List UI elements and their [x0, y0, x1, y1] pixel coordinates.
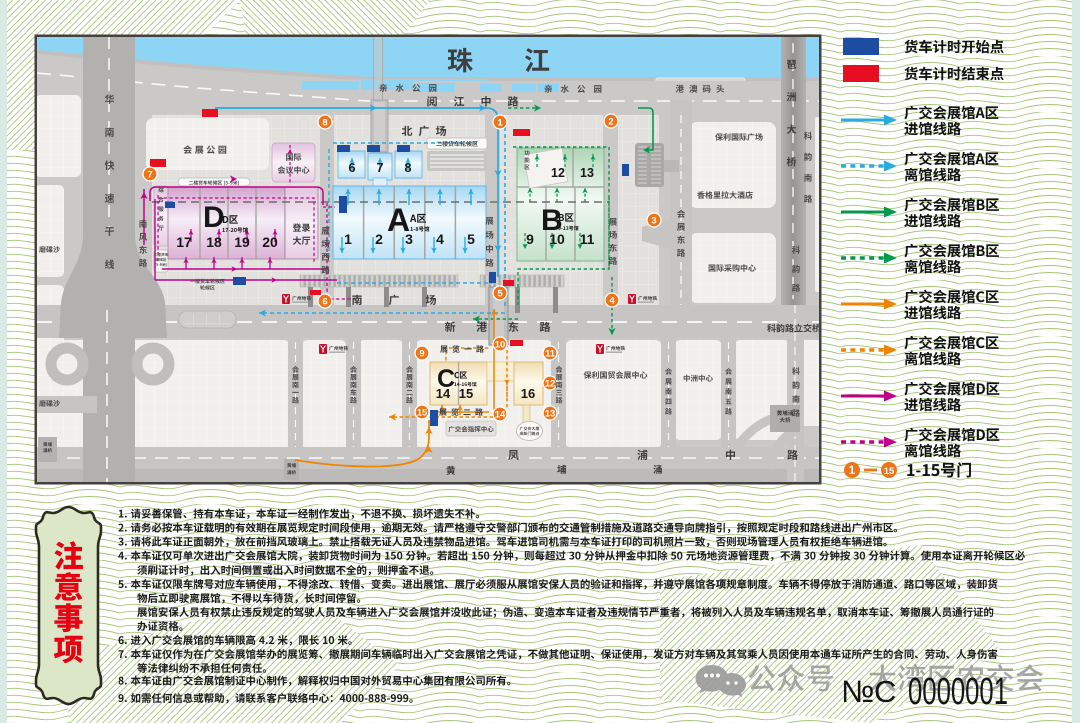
svg-text:6: 6 [322, 296, 327, 307]
svg-text:20: 20 [262, 234, 278, 250]
svg-text:15: 15 [459, 386, 473, 401]
svg-text:1: 1 [344, 231, 352, 247]
svg-text:2: 2 [608, 116, 613, 127]
svg-text:11: 11 [580, 231, 595, 247]
svg-text:0000001: 0000001 [908, 671, 1008, 713]
svg-text:18: 18 [206, 234, 222, 250]
svg-text:14: 14 [436, 386, 451, 401]
svg-text:10: 10 [549, 231, 565, 247]
svg-text:1: 1 [849, 465, 856, 477]
svg-text:3: 3 [405, 231, 413, 247]
svg-text:15: 15 [884, 466, 895, 477]
svg-text:17: 17 [176, 234, 192, 250]
svg-text:№: № [841, 674, 874, 709]
svg-text:12: 12 [551, 166, 565, 180]
svg-text:D: D [203, 201, 225, 234]
svg-text:C: C [874, 674, 896, 709]
svg-text:13: 13 [545, 408, 556, 419]
svg-text:4: 4 [609, 295, 615, 306]
svg-text:4: 4 [436, 231, 444, 247]
svg-text:9: 9 [419, 348, 424, 359]
svg-text:10: 10 [495, 339, 506, 350]
svg-text:13: 13 [580, 166, 594, 180]
svg-text:2: 2 [375, 231, 383, 247]
svg-text:11: 11 [545, 348, 556, 359]
svg-text:3: 3 [651, 215, 656, 226]
svg-text:8: 8 [322, 117, 327, 128]
svg-text:14: 14 [495, 409, 506, 420]
svg-text:9: 9 [526, 231, 534, 247]
svg-text:6: 6 [349, 161, 356, 175]
svg-text:12: 12 [545, 378, 556, 389]
svg-text:15: 15 [417, 407, 428, 418]
svg-text:19: 19 [234, 234, 250, 250]
svg-text:16: 16 [521, 386, 535, 401]
svg-text:5: 5 [497, 288, 503, 299]
svg-text:7: 7 [377, 161, 384, 175]
svg-text:5: 5 [467, 231, 475, 247]
svg-text:1: 1 [497, 117, 503, 128]
svg-text:7: 7 [147, 169, 152, 180]
svg-text:8: 8 [405, 161, 412, 175]
